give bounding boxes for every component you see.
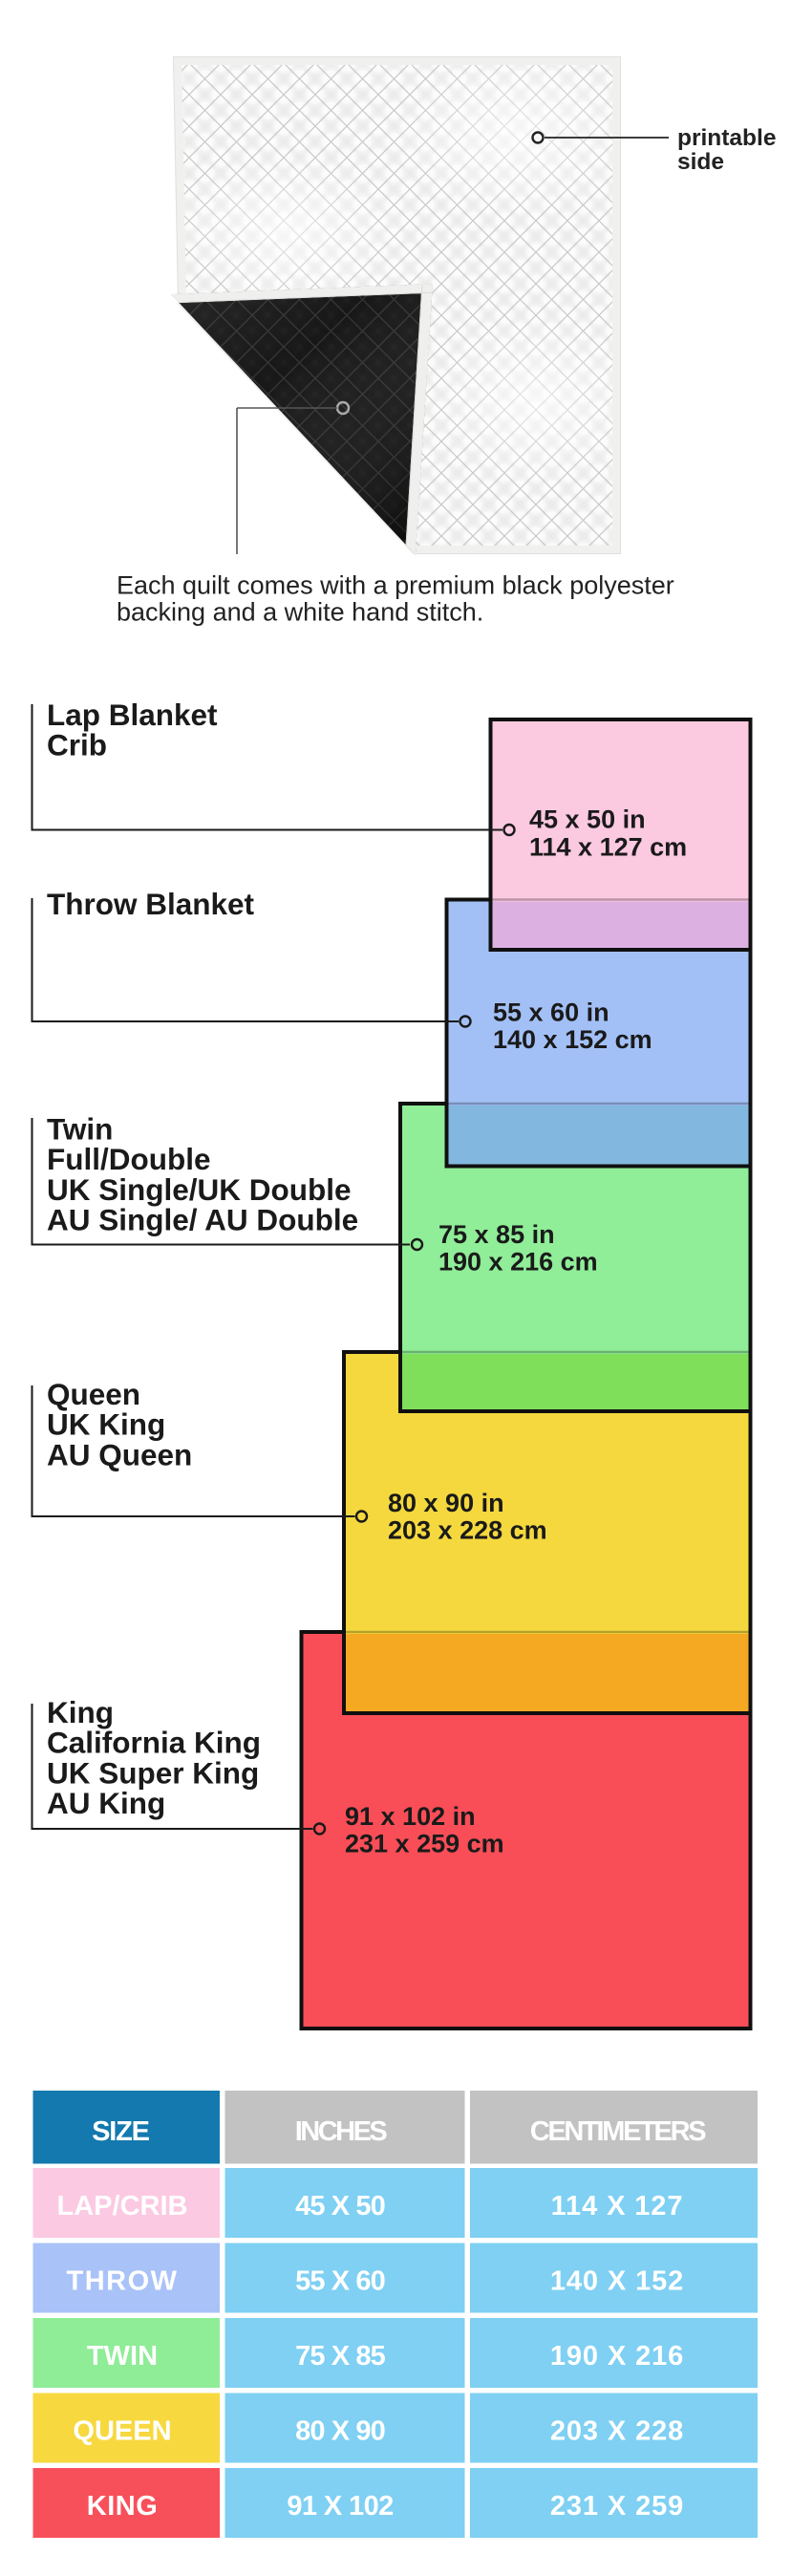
svg-text:203 x 228 cm: 203 x 228 cm (388, 1516, 547, 1545)
svg-text:INCHES: INCHES (295, 2116, 388, 2147)
svg-text:side: side (677, 149, 724, 175)
svg-text:AU King: AU King (47, 1786, 165, 1820)
svg-text:backing and a white hand stitc: backing and a white hand stitch. (117, 598, 483, 627)
svg-text:91 X 102: 91 X 102 (287, 2491, 393, 2522)
svg-text:45 X 50: 45 X 50 (295, 2191, 385, 2222)
svg-text:KING: KING (87, 2491, 159, 2522)
svg-text:Twin: Twin (47, 1112, 113, 1147)
svg-text:QUEEN: QUEEN (73, 2416, 171, 2447)
svg-text:Lap Blanket: Lap Blanket (47, 698, 218, 732)
svg-text:231 x 259 cm: 231 x 259 cm (345, 1830, 504, 1858)
svg-text:140 x 152 cm: 140 x 152 cm (493, 1025, 652, 1054)
svg-text:Full/Double: Full/Double (47, 1142, 210, 1176)
svg-text:190 X 216: 190 X 216 (550, 2341, 684, 2372)
svg-text:CENTIMETERS: CENTIMETERS (530, 2116, 707, 2147)
svg-text:California King: California King (47, 1726, 261, 1760)
svg-text:55 X 60: 55 X 60 (295, 2266, 385, 2297)
svg-text:75 x 85 in: 75 x 85 in (438, 1220, 555, 1249)
svg-text:AU Single/ AU Double: AU Single/ AU Double (47, 1203, 358, 1237)
svg-text:140 X 152: 140 X 152 (550, 2266, 684, 2297)
svg-text:UK King: UK King (47, 1407, 165, 1442)
svg-text:114 X 127: 114 X 127 (551, 2191, 684, 2222)
svg-text:190 x 216 cm: 190 x 216 cm (438, 1248, 598, 1277)
svg-text:AU Queen: AU Queen (47, 1437, 192, 1471)
svg-text:TWIN: TWIN (87, 2341, 158, 2372)
svg-text:203 X 228: 203 X 228 (550, 2416, 684, 2447)
svg-text:THROW: THROW (66, 2266, 178, 2297)
svg-text:SIZE: SIZE (92, 2116, 150, 2147)
svg-text:printable: printable (677, 125, 776, 151)
svg-text:King: King (47, 1695, 114, 1729)
svg-text:UK Single/UK Double: UK Single/UK Double (47, 1172, 352, 1207)
svg-text:75 X 85: 75 X 85 (295, 2341, 385, 2372)
svg-text:231 X 259: 231 X 259 (550, 2491, 684, 2522)
svg-text:55 x 60 in: 55 x 60 in (493, 998, 609, 1026)
svg-text:Queen: Queen (47, 1377, 140, 1411)
svg-text:Each quilt comes with a premiu: Each quilt comes with a premium black po… (117, 571, 674, 600)
svg-text:91 x 102 in: 91 x 102 in (345, 1802, 476, 1831)
svg-text:80 X 90: 80 X 90 (295, 2416, 385, 2447)
svg-text:45 x 50 in: 45 x 50 in (529, 805, 646, 834)
svg-text:Crib: Crib (47, 728, 107, 762)
svg-text:80 x 90 in: 80 x 90 in (388, 1489, 504, 1517)
svg-text:Throw Blanket: Throw Blanket (47, 887, 255, 921)
svg-text:LAP/CRIB: LAP/CRIB (57, 2191, 188, 2222)
svg-text:UK Super King: UK Super King (47, 1755, 259, 1790)
svg-text:114 x 127 cm: 114 x 127 cm (529, 832, 687, 861)
